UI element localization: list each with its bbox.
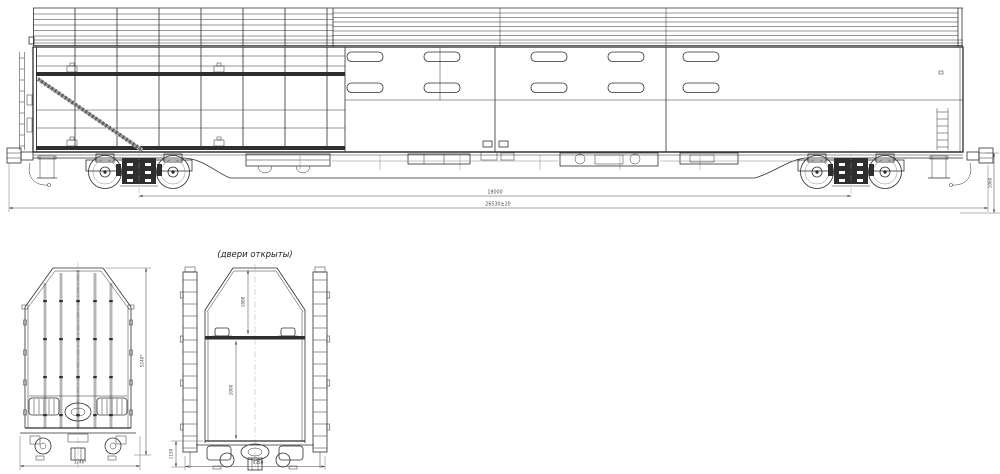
drawing-sheet: 19000 26530±20 1060	[0, 0, 1000, 474]
dim-width-open: 4350	[253, 460, 264, 465]
coupler-left	[7, 148, 51, 187]
dim-closed-width: 3246*	[74, 460, 87, 465]
side-upper-tier	[29, 8, 963, 47]
side-view: 19000 26530±20 1060	[7, 8, 1000, 213]
wheel-chock-left	[212, 328, 232, 336]
open-dimensions: 1800 2000 1150 4350	[169, 270, 326, 470]
end-view-open: (двери открыты)	[169, 250, 330, 470]
loading-ramp-diagonal	[37, 78, 143, 152]
wheel-chock-right	[278, 328, 298, 336]
upper-rails-open	[33, 14, 333, 36]
wagon-technical-drawing: 19000 26530±20 1060	[0, 0, 1000, 474]
sill-hangers	[300, 155, 700, 170]
upper-posts	[34, 8, 328, 46]
end-ladder-right	[937, 108, 948, 150]
view-label-doors-open: (двери открыты)	[217, 250, 292, 260]
dim-upper-tier: 1800	[241, 296, 246, 307]
dim-floor-height: 1150	[169, 448, 174, 459]
lattice-rails	[36, 56, 345, 128]
door-handle-left	[483, 141, 492, 147]
lower-wheel-track	[36, 146, 345, 150]
upper-deck	[205, 336, 305, 340]
dim-lower-tier: 2000	[229, 384, 234, 395]
end-step-right	[928, 156, 950, 178]
dim-coupler-height: 1060	[988, 177, 993, 188]
dim-closed-height: 5240*	[140, 355, 145, 368]
end-ladder-left	[20, 52, 33, 150]
upper-panel-lines	[333, 13, 958, 36]
upper-wheel-track	[36, 72, 345, 76]
side-body	[20, 47, 964, 152]
end-step-left	[37, 156, 57, 178]
body-fitting	[939, 71, 943, 74]
end-view-closed: 5240* 3246*	[20, 262, 151, 470]
coupler-right	[949, 148, 993, 187]
dim-bogie-centers: 19000	[487, 190, 502, 196]
vent-louvres	[347, 52, 719, 93]
dim-overall-length: 26530±20	[485, 202, 510, 208]
door-handle-right	[499, 141, 508, 147]
lattice-posts	[37, 47, 328, 150]
